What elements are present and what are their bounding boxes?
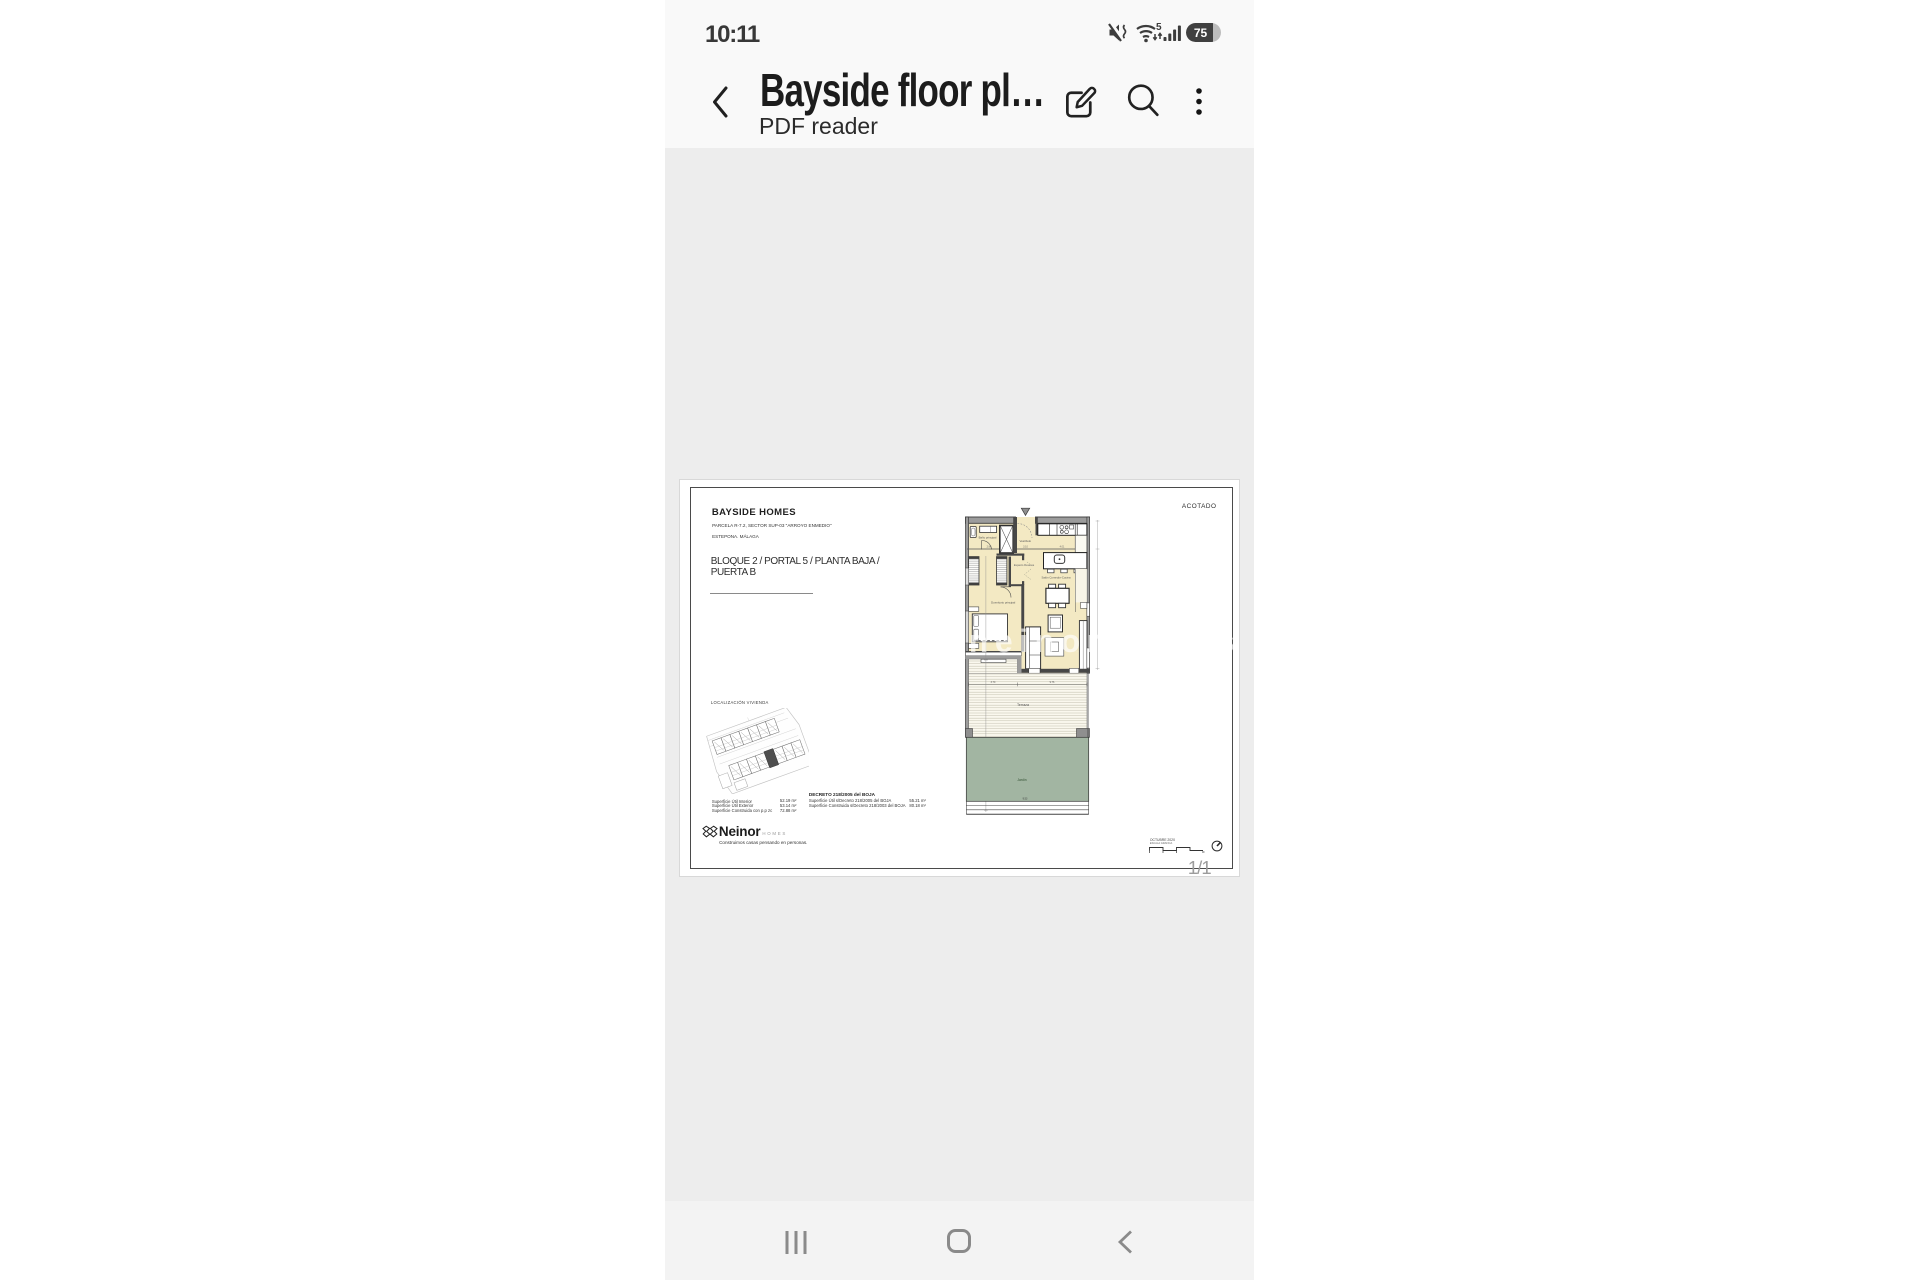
- svg-text:3.70: 3.70: [991, 681, 996, 684]
- svg-text:Vestíbulo: Vestíbulo: [1019, 539, 1031, 543]
- svg-text:9.76: 9.76: [1050, 681, 1055, 684]
- svg-text:Espacio Reserva: Espacio Reserva: [1014, 563, 1035, 567]
- svg-text:Baño principal: Baño principal: [979, 536, 997, 540]
- svg-text:Terraza: Terraza: [1017, 703, 1029, 707]
- svg-text:neinorhomes: neinorhomes: [969, 623, 1240, 659]
- svg-text:2.86: 2.86: [987, 546, 992, 549]
- svg-text:9.53: 9.53: [1023, 798, 1028, 801]
- svg-text:Jardín: Jardín: [1017, 778, 1026, 782]
- svg-text:3.10: 3.10: [1023, 546, 1028, 549]
- svg-text:Dormitorio principal: Dormitorio principal: [991, 601, 1015, 605]
- svg-text:4.01: 4.01: [1060, 546, 1065, 549]
- svg-text:Salón Comedor-Cocina: Salón Comedor-Cocina: [1041, 576, 1071, 580]
- svg-text:5: 5: [1156, 22, 1162, 33]
